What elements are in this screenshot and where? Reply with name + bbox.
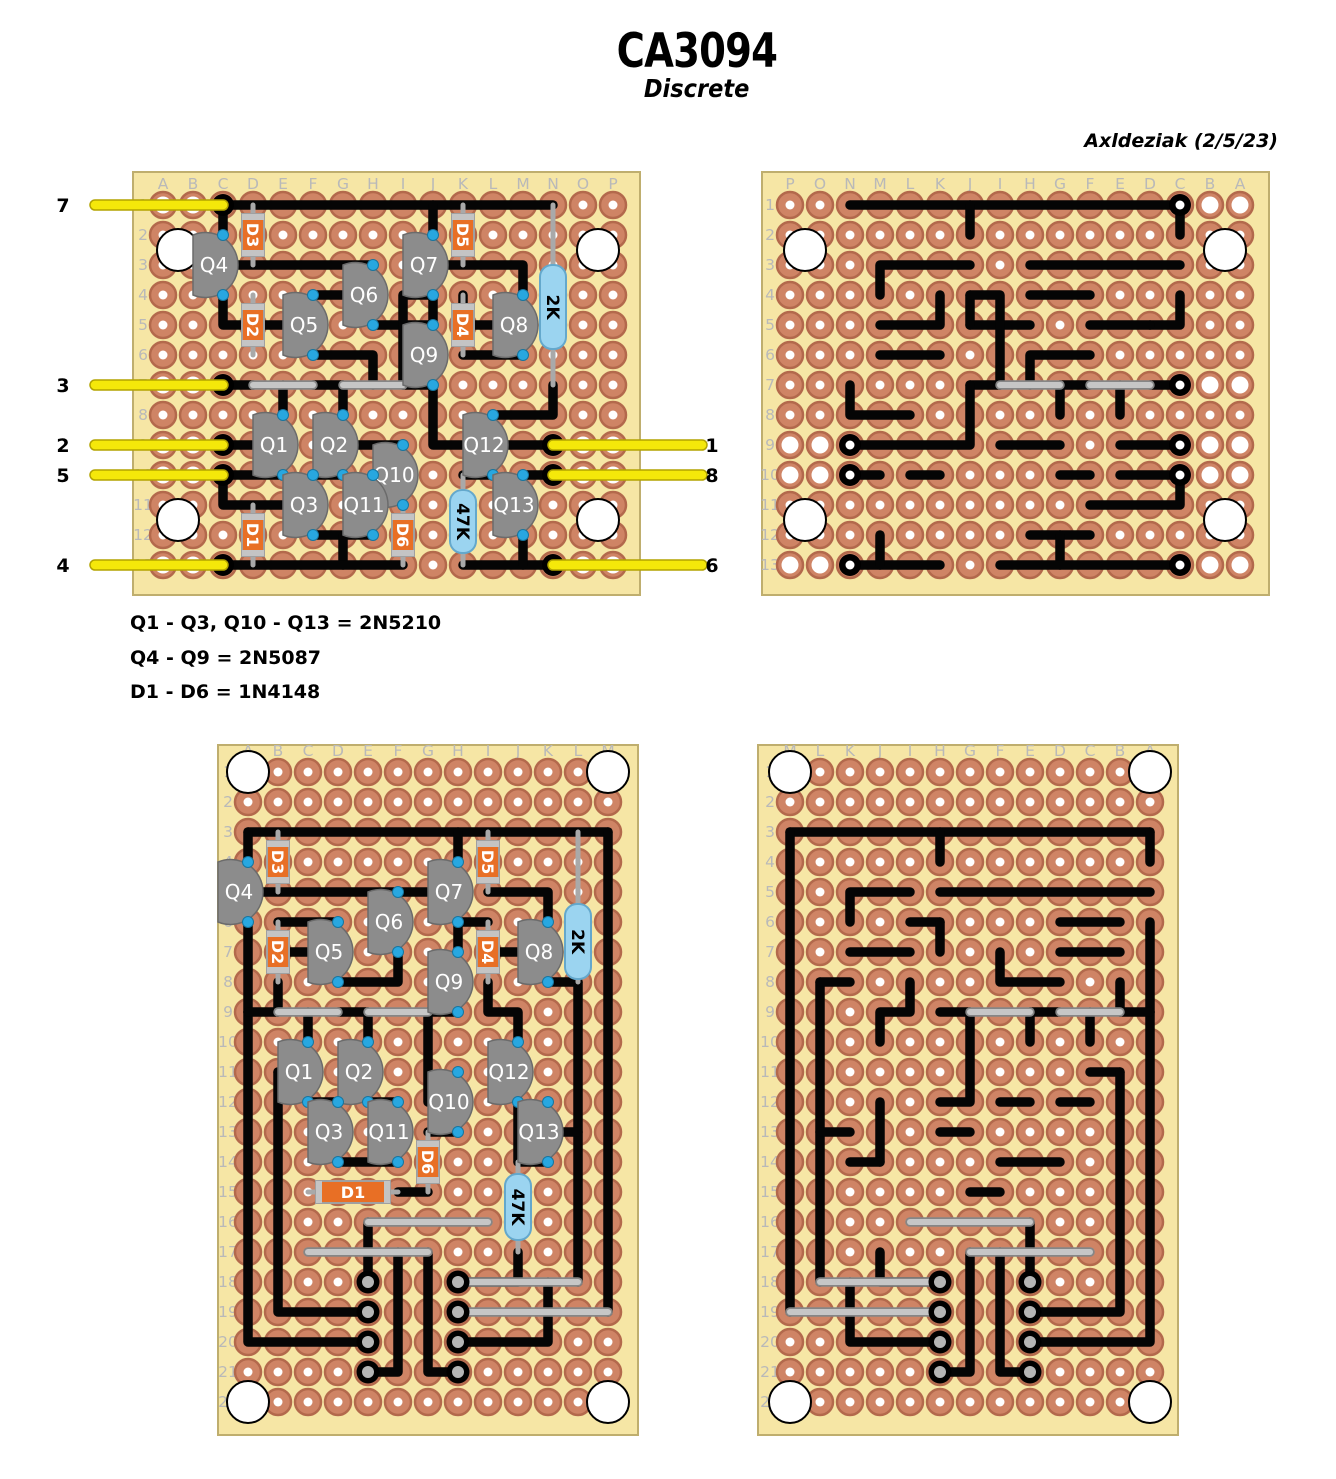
pad-hole [786, 381, 795, 390]
pad-hole [1086, 768, 1095, 777]
pad-hole [816, 1368, 825, 1377]
pad-hole [996, 531, 1005, 540]
pad-hole [846, 1398, 855, 1407]
pad-hole [846, 1068, 855, 1077]
terminal-center [1024, 1276, 1036, 1288]
label: 47K [507, 1189, 527, 1227]
label: E [363, 742, 373, 760]
pad-hole [1086, 1158, 1095, 1167]
lead-dot [308, 530, 319, 541]
lead-dot [333, 977, 344, 988]
pad-hole [369, 411, 378, 420]
label: D5 [478, 850, 497, 874]
pad-hole [786, 1368, 795, 1377]
terminal-center [362, 1276, 374, 1288]
label: 9 [765, 436, 775, 454]
diode-D3: D3 [242, 205, 264, 265]
pad-hole [1116, 1368, 1125, 1377]
label: E [1025, 742, 1035, 760]
pad-hole [1206, 291, 1215, 300]
label: C [218, 175, 229, 193]
pad-hole [274, 1368, 283, 1377]
pad-hole [906, 381, 915, 390]
label: K [543, 742, 554, 760]
pad-hole [816, 291, 825, 300]
pad-hole [279, 231, 288, 240]
pad-hole [1026, 1128, 1035, 1137]
pad-hole [514, 768, 523, 777]
lead-dot [543, 1097, 554, 1108]
label: I [998, 175, 1003, 193]
pad-hole [1202, 197, 1219, 214]
label: Q13 [493, 493, 534, 517]
pad-hole [1056, 1038, 1065, 1047]
label: D5 [453, 223, 472, 247]
pin-label: 1 [705, 435, 718, 457]
lead-dot [518, 470, 529, 481]
pad-hole [424, 1398, 433, 1407]
pad-hole [454, 1188, 463, 1197]
pad-hole [159, 291, 168, 300]
lead-dot [368, 320, 379, 331]
pad-hole [364, 768, 373, 777]
pad-hole [1232, 437, 1249, 454]
pad-hole [1146, 231, 1155, 240]
pad-hole [906, 1398, 915, 1407]
pad-hole [339, 231, 348, 240]
terminal-center [362, 1336, 374, 1348]
pin-label: 3 [56, 375, 69, 397]
label: 2K [542, 294, 562, 320]
pad-hole [846, 261, 855, 270]
label: 2K [567, 929, 587, 955]
pin-label: 6 [705, 555, 718, 577]
pad-hole [966, 798, 975, 807]
lead-dot [308, 350, 319, 361]
pad-hole [1056, 858, 1065, 867]
pad-hole [544, 798, 553, 807]
terminal-center [362, 1366, 374, 1378]
pad-hole [936, 501, 945, 510]
label: L [906, 175, 915, 193]
pad-hole [1056, 1128, 1065, 1137]
pad-hole [364, 798, 373, 807]
pad-hole [906, 858, 915, 867]
label: F [394, 742, 403, 760]
pad-hole [996, 918, 1005, 927]
pad-hole [1146, 411, 1155, 420]
pad-hole [544, 1218, 553, 1227]
lead-dot [393, 1097, 404, 1108]
pad-hole [816, 1338, 825, 1347]
label: 6 [765, 346, 775, 364]
pad-hole [996, 1398, 1005, 1407]
diode-D2: D2 [267, 922, 289, 982]
mount-hole [577, 229, 619, 271]
pad-hole [544, 1008, 553, 1017]
pad-hole [394, 858, 403, 867]
lead-dot [333, 1157, 344, 1168]
lead-dot [428, 290, 439, 301]
pad-hole [1086, 1188, 1095, 1197]
board-top-right: ABCDEFGHIJKLMNOP12345678910111213 [760, 172, 1269, 595]
pad-hole [786, 411, 795, 420]
pad-hole [1202, 557, 1219, 574]
pad-hole [1056, 231, 1065, 240]
pad-hole [574, 1368, 583, 1377]
pad-hole [484, 1128, 493, 1137]
pad-hole [304, 1218, 313, 1227]
terminal-center [934, 1276, 946, 1288]
pad-hole [966, 1398, 975, 1407]
pad-hole [454, 1398, 463, 1407]
label: J [967, 175, 973, 193]
pad-hole [1176, 411, 1185, 420]
label: D [1054, 742, 1066, 760]
pad-hole [1026, 1398, 1035, 1407]
pad-hole [159, 321, 168, 330]
label: I [908, 742, 913, 760]
label: A [1235, 175, 1246, 193]
lead-dot [363, 1037, 374, 1048]
lead-dot [453, 857, 464, 868]
solder-pin-hole [846, 561, 855, 570]
label: D3 [243, 223, 262, 247]
pad-hole [816, 948, 825, 957]
pad-hole [966, 1158, 975, 1167]
pad-hole [604, 1338, 613, 1347]
diode-D5: D5 [477, 832, 499, 892]
pad-hole [786, 351, 795, 360]
pad-hole [334, 798, 343, 807]
label: O [814, 175, 826, 193]
pad-hole [454, 1248, 463, 1257]
pad-hole [189, 321, 198, 330]
label: Q1 [260, 433, 288, 457]
label: 8 [765, 973, 775, 991]
pad-hole [1206, 321, 1215, 330]
pad-hole [876, 1218, 885, 1227]
pad-hole [966, 351, 975, 360]
label: 7 [765, 943, 775, 961]
label: D3 [268, 850, 287, 874]
pad-hole [304, 768, 313, 777]
lead-dot [543, 977, 554, 988]
pad-hole [996, 261, 1005, 270]
pad-hole [1086, 231, 1095, 240]
label: Q6 [350, 283, 378, 307]
label: Q13 [518, 1120, 559, 1144]
pad-hole [579, 201, 588, 210]
pad-hole [996, 1038, 1005, 1047]
pad-hole [1086, 978, 1095, 987]
pad-hole [544, 858, 553, 867]
label: D6 [418, 1150, 437, 1174]
pad-hole [544, 1188, 553, 1197]
pad-hole [906, 501, 915, 510]
terminal-center [934, 1336, 946, 1348]
lead-dot [488, 410, 499, 421]
pad-hole [1086, 858, 1095, 867]
pad-hole [1056, 768, 1065, 777]
pad-hole [574, 768, 583, 777]
pad-hole [906, 531, 915, 540]
label: 6 [765, 913, 775, 931]
pad-hole [1206, 351, 1215, 360]
label: Q8 [500, 313, 528, 337]
pad-hole [394, 768, 403, 777]
label: 3 [138, 256, 148, 274]
pad-hole [394, 1398, 403, 1407]
label: Q6 [375, 910, 403, 934]
pad-hole [782, 467, 799, 484]
pad-hole [519, 381, 528, 390]
pad-hole [846, 1038, 855, 1047]
lead-dot [398, 440, 409, 451]
pad-hole [846, 1008, 855, 1017]
pad-hole [484, 1158, 493, 1167]
pad-hole [459, 381, 468, 390]
pad-hole [514, 1398, 523, 1407]
label: 8 [223, 973, 233, 991]
pad-hole [816, 888, 825, 897]
pad-hole [846, 1188, 855, 1197]
pad-hole [996, 798, 1005, 807]
pad-hole [816, 858, 825, 867]
pad-hole [1116, 858, 1125, 867]
pad-hole [966, 561, 975, 570]
pad-hole [996, 1068, 1005, 1077]
label: Q9 [410, 343, 438, 367]
pad-hole [579, 321, 588, 330]
diode-D4: D4 [477, 922, 499, 982]
pad-hole [399, 411, 408, 420]
lead-dot [518, 350, 529, 361]
solder-pin-hole [846, 471, 855, 480]
pin-label: 4 [56, 555, 69, 577]
label: Q5 [290, 313, 318, 337]
pad-hole [1146, 798, 1155, 807]
terminal-center [452, 1366, 464, 1378]
pad-hole [846, 1098, 855, 1107]
pad-hole [394, 1038, 403, 1047]
pad-hole [1116, 231, 1125, 240]
pad-hole [189, 351, 198, 360]
pad-hole [334, 858, 343, 867]
label: 2 [765, 226, 775, 244]
pad-hole [304, 858, 313, 867]
pad-hole [812, 557, 829, 574]
pad-hole [1146, 291, 1155, 300]
pad-hole [364, 1398, 373, 1407]
lead-dot [428, 320, 439, 331]
pad-hole [484, 1188, 493, 1197]
pad-hole [936, 1038, 945, 1047]
pad-hole [544, 1068, 553, 1077]
pad-hole [514, 858, 523, 867]
pad-hole [782, 437, 799, 454]
mount-hole [587, 1381, 629, 1423]
pad-hole [544, 1368, 553, 1377]
pad-hole [966, 978, 975, 987]
pad-hole [816, 798, 825, 807]
lead-dot [368, 470, 379, 481]
pad-hole [1056, 1278, 1065, 1287]
pad-hole [429, 471, 438, 480]
pad-hole [1026, 471, 1035, 480]
pad-hole [1236, 411, 1245, 420]
pad-hole [1236, 291, 1245, 300]
pad-hole [786, 321, 795, 330]
terminal-center [1024, 1336, 1036, 1348]
lead-dot [518, 290, 529, 301]
pad-hole [906, 1128, 915, 1137]
pad-hole [334, 768, 343, 777]
label: L [489, 175, 498, 193]
pad-hole [846, 1248, 855, 1257]
solder-pin-hole [1176, 561, 1185, 570]
pad-hole [1116, 768, 1125, 777]
label: D2 [243, 313, 262, 337]
pad-hole [609, 381, 618, 390]
mount-hole [769, 1381, 811, 1423]
label: C [1175, 175, 1186, 193]
label: B [188, 175, 199, 193]
pad-hole [936, 1188, 945, 1197]
pad-hole [816, 351, 825, 360]
label: G [1054, 175, 1066, 193]
lead-dot [393, 1157, 404, 1168]
lead-dot [308, 470, 319, 481]
pad-hole [244, 798, 253, 807]
pad-hole [309, 231, 318, 240]
pin-label: 7 [56, 195, 69, 217]
label: G [422, 742, 434, 760]
pad-hole [394, 798, 403, 807]
pad-hole [1026, 798, 1035, 807]
label: Q7 [410, 253, 438, 277]
pad-hole [604, 1368, 613, 1377]
pad-hole [936, 411, 945, 420]
label: Q3 [290, 493, 318, 517]
pad-hole [876, 501, 885, 510]
lead-dot [368, 260, 379, 271]
pad-hole [1232, 557, 1249, 574]
pad-hole [1086, 441, 1095, 450]
solder-pin-hole [1176, 471, 1185, 480]
lead-dot [338, 410, 349, 421]
board-bottom-right: ABCDEFGHIJKLM123456789101112131415161718… [758, 742, 1178, 1435]
pad-hole [1056, 1218, 1065, 1227]
pad-hole [846, 501, 855, 510]
lead-dot [243, 917, 254, 928]
label: 7 [765, 376, 775, 394]
solder-pin-hole [846, 441, 855, 450]
lead-dot [333, 917, 344, 928]
pad-hole [1202, 377, 1219, 394]
pad-hole [812, 467, 829, 484]
pad-hole [609, 291, 618, 300]
pad-hole [966, 531, 975, 540]
pad-hole [1086, 1128, 1095, 1137]
pad-hole [159, 351, 168, 360]
label: D2 [268, 940, 287, 964]
pad-hole [936, 1398, 945, 1407]
mount-hole [784, 499, 826, 541]
pad-hole [484, 768, 493, 777]
pad-hole [219, 351, 228, 360]
pad-hole [1056, 1188, 1065, 1197]
pad-hole [514, 1368, 523, 1377]
pad-hole [1056, 798, 1065, 807]
pin-label: 5 [56, 465, 69, 487]
label: 4 [138, 286, 148, 304]
pad-hole [876, 918, 885, 927]
label: K [845, 742, 856, 760]
pad-hole [876, 768, 885, 777]
pad-hole [816, 918, 825, 927]
pad-hole [966, 948, 975, 957]
pad-hole [1026, 231, 1035, 240]
label: Q9 [435, 970, 463, 994]
terminal-center [934, 1366, 946, 1378]
mount-hole [227, 751, 269, 793]
label: D6 [393, 523, 412, 547]
label: M [873, 175, 886, 193]
pad-hole [876, 858, 885, 867]
pad-hole [996, 411, 1005, 420]
label: Q2 [320, 433, 348, 457]
pad-hole [519, 231, 528, 240]
pad-hole [1116, 1398, 1125, 1407]
pad-hole [1026, 948, 1035, 957]
pad-hole [846, 1368, 855, 1377]
board-bottom-left: ABCDEFGHIJKLM123456789101112131415161718… [218, 742, 638, 1435]
pad-hole [244, 1368, 253, 1377]
mount-hole [157, 499, 199, 541]
pad-hole [816, 201, 825, 210]
pad-hole [334, 1278, 343, 1287]
pad-hole [424, 768, 433, 777]
label: 3 [765, 823, 775, 841]
pad-hole [1026, 858, 1035, 867]
label: 9 [223, 1003, 233, 1021]
label: 8 [138, 406, 148, 424]
pad-hole [816, 321, 825, 330]
pad-hole [846, 231, 855, 240]
pad-hole [609, 351, 618, 360]
pad-hole [1086, 1368, 1095, 1377]
pad-hole [579, 411, 588, 420]
label: Q3 [315, 1120, 343, 1144]
pad-hole [936, 978, 945, 987]
pad-hole [544, 1398, 553, 1407]
diode-D3: D3 [267, 832, 289, 892]
label: B [1115, 742, 1126, 760]
terminal-center [452, 1276, 464, 1288]
diode-D4: D4 [452, 295, 474, 355]
lead-dot [303, 1037, 314, 1048]
pad-hole [936, 1248, 945, 1257]
pad-hole [786, 291, 795, 300]
solder-pin-hole [1176, 201, 1185, 210]
mount-hole [1204, 229, 1246, 271]
pad-hole [334, 1368, 343, 1377]
lead-dot [333, 1097, 344, 1108]
pad-hole [544, 768, 553, 777]
pad-hole [782, 557, 799, 574]
mount-hole [1204, 499, 1246, 541]
